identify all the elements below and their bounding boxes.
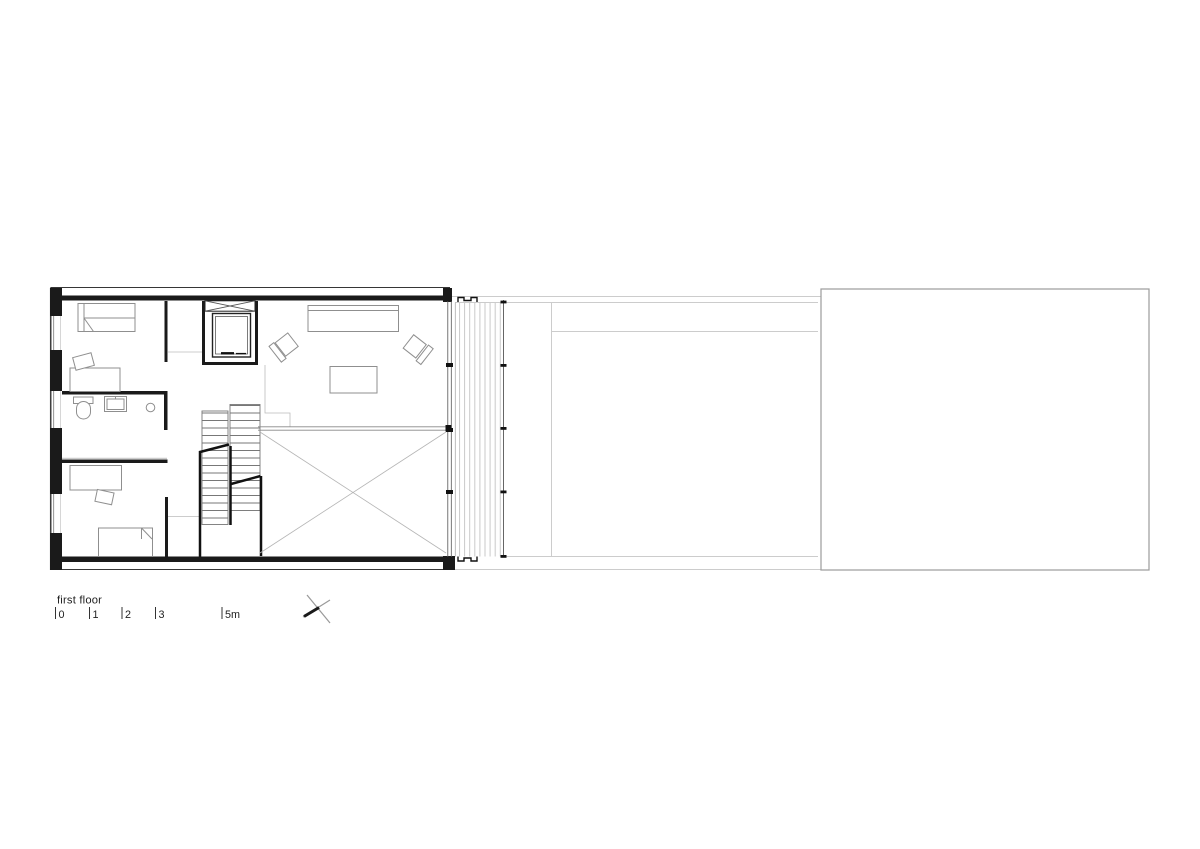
scale-label: 2 [125, 609, 131, 621]
site-outline [452, 297, 821, 570]
coffee-table [330, 367, 377, 394]
window [51, 316, 60, 350]
scale-bar: 0 1 2 3 5m [56, 607, 241, 621]
interior-walls [62, 301, 168, 557]
living-area [269, 306, 433, 394]
deck-step-mark-top [458, 298, 477, 303]
scale-label: 1 [93, 609, 99, 621]
railing-cap [446, 425, 452, 432]
windows-left-wall [51, 316, 60, 533]
window [51, 494, 60, 533]
scale-label: 3 [159, 609, 165, 621]
scale-ticks [56, 607, 223, 619]
chair [95, 489, 114, 504]
stair-flight-left [202, 411, 228, 525]
armchair-left [269, 332, 299, 362]
sink-basin [107, 399, 124, 410]
deck-planks [456, 303, 504, 557]
void-opening [258, 425, 452, 553]
deck-step-mark-bottom [458, 557, 477, 562]
deck-terrace [455, 298, 506, 562]
north-arrow-icon [303, 595, 330, 623]
floor-plan-drawing: first floor 0 1 2 3 5m [0, 0, 1200, 849]
drawing-caption: first floor [57, 595, 102, 607]
desk [70, 466, 122, 491]
stair-flight-right [230, 405, 260, 511]
hall-lines [168, 352, 290, 517]
scale-label: 5m [225, 609, 240, 621]
window [51, 391, 60, 428]
stove-outer [213, 314, 251, 358]
sofa [308, 306, 399, 332]
desk [70, 368, 120, 392]
scale-label: 0 [59, 609, 65, 621]
bathroom [74, 397, 155, 420]
floor-plan-page: first floor 0 1 2 3 5m [0, 0, 1200, 849]
drain [146, 403, 155, 412]
staircase [200, 405, 261, 557]
annex-outline [821, 289, 1149, 570]
toilet-bowl [77, 402, 91, 420]
fireplace [202, 301, 258, 365]
armchair-right [402, 334, 433, 365]
bedroom-top [70, 304, 135, 392]
bed [99, 528, 153, 557]
bedroom-bottom [70, 466, 153, 557]
